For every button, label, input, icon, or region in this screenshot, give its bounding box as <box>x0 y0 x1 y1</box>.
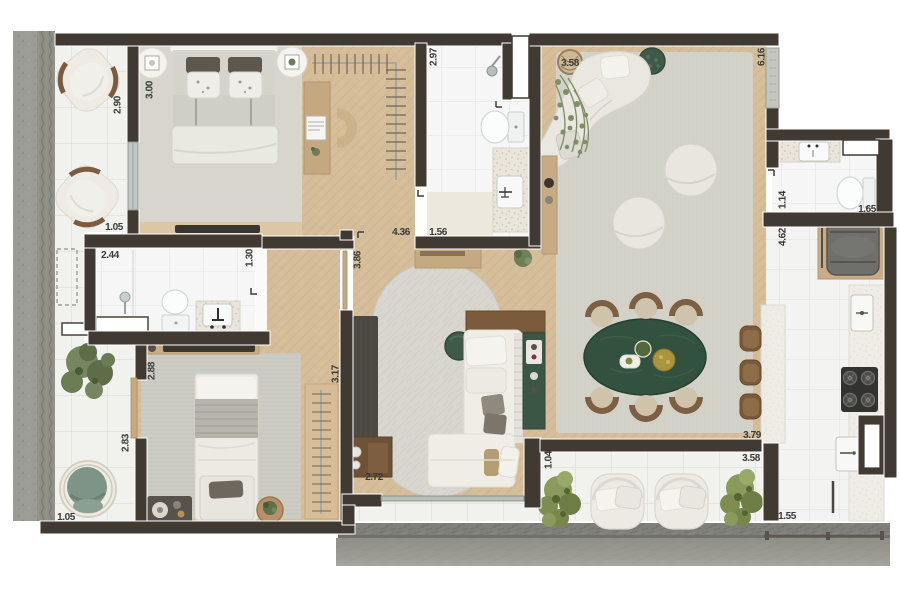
svg-text:2.90: 2.90 <box>113 95 124 114</box>
svg-text:1.04: 1.04 <box>544 450 555 469</box>
svg-text:4.62: 4.62 <box>778 227 789 246</box>
svg-text:3.00: 3.00 <box>145 80 156 99</box>
svg-text:6.16: 6.16 <box>757 47 768 66</box>
svg-text:2.97: 2.97 <box>429 47 440 66</box>
svg-text:1.65: 1.65 <box>858 204 877 215</box>
svg-text:1.05: 1.05 <box>57 512 76 523</box>
svg-text:1.30: 1.30 <box>245 248 256 267</box>
svg-text:1.55: 1.55 <box>778 511 797 522</box>
svg-text:1.56: 1.56 <box>429 227 448 238</box>
svg-text:2.44: 2.44 <box>101 250 120 261</box>
svg-text:4.36: 4.36 <box>392 227 411 238</box>
svg-text:1.05: 1.05 <box>105 222 124 233</box>
svg-text:3.79: 3.79 <box>743 430 762 441</box>
svg-text:3.58: 3.58 <box>561 58 580 69</box>
svg-text:3.86: 3.86 <box>353 250 364 269</box>
svg-text:2.72: 2.72 <box>365 472 384 483</box>
svg-text:3.58: 3.58 <box>742 453 761 464</box>
svg-text:2.88: 2.88 <box>147 361 158 380</box>
svg-text:3.17: 3.17 <box>331 364 342 383</box>
svg-text:2.83: 2.83 <box>121 433 132 452</box>
svg-text:1.14: 1.14 <box>778 190 789 209</box>
